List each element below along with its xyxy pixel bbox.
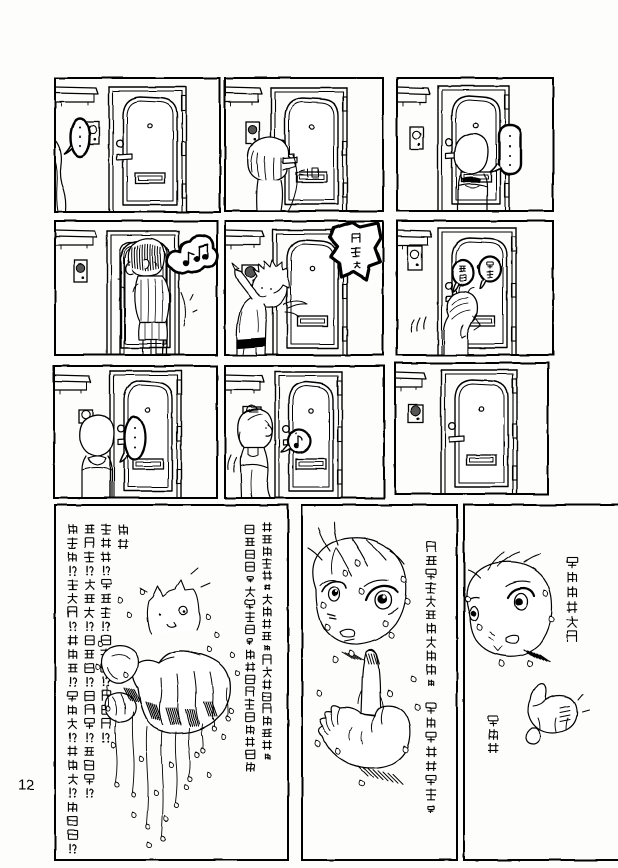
- svg-text:12: 12: [18, 777, 35, 794]
